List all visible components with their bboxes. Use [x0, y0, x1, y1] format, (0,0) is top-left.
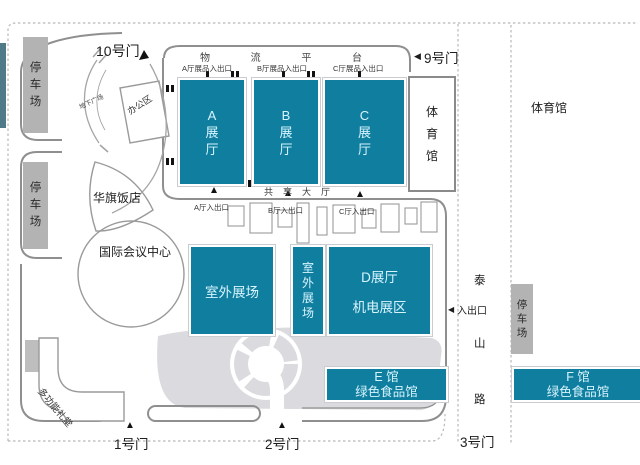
gate-3-label: 3号门 [460, 431, 495, 451]
conference-center-label: 国际会议中心 [99, 243, 171, 260]
venue-map: A展厅 B展厅 C展厅 室外展场 室外展场 D展厅 机电展区 E 馆 绿色食品馆… [0, 0, 640, 465]
hall-e: E 馆 绿色食品馆 [325, 367, 448, 402]
hall-entry-c-label: C厅入出口 [339, 206, 374, 217]
small-buildings-row [228, 202, 437, 243]
hall-a-label: A展厅 [205, 107, 219, 158]
conference-circle [78, 221, 184, 327]
gate-2-label: 2号门 [265, 433, 300, 453]
logistics-platform-label: 物 流 平 台 [200, 49, 362, 64]
freight-entrance-b-label: B厅展品入出口 [257, 63, 307, 74]
gate-9-label: 9号门 [424, 47, 459, 67]
gate-1-label: 1号门 [114, 433, 149, 453]
hall-b-label: B展厅 [279, 107, 293, 158]
gate10-triangle [139, 50, 149, 60]
hall-e-line1: E 馆 [374, 370, 398, 385]
hall-d-line2: 机电展区 [353, 296, 407, 316]
shared-hall-label: 共享大厅 [264, 185, 340, 198]
hall-entry-a-label: A厅入出口 [194, 202, 229, 213]
platform-char: 台 [352, 49, 362, 64]
gate-2-triangle-icon: ▲ [277, 420, 287, 431]
outdoor-exhibition-small-label: 室外展场 [302, 261, 315, 321]
road-char-tai: 泰 [474, 272, 486, 288]
freight-entrance-c-label: C厅展品入出口 [333, 63, 383, 74]
outdoor-exhibition-big-label: 室外展场 [205, 281, 259, 301]
parking-right-label: 停车场 [516, 298, 527, 340]
hall-entry-b-label: B厅入出口 [268, 205, 303, 216]
parking-lot-left-top: 停车场 [23, 37, 48, 133]
hall-f: F 馆 绿色食品馆 [512, 367, 640, 402]
gymnasium-outer-label: 体育馆 [531, 97, 544, 119]
parking-left-top-label: 停车场 [29, 60, 41, 111]
gymnasium-inner: 体育馆 [408, 76, 456, 192]
road-char-shan: 山 [474, 335, 486, 351]
hall-f-line1: F 馆 [566, 370, 590, 385]
road-char-lu: 路 [474, 391, 486, 407]
gymnasium-inner-label: 体育馆 [426, 101, 439, 167]
parking-left-bottom-label: 停车场 [29, 180, 41, 231]
gate-9-arrow-icon: ◀ [414, 51, 421, 62]
hall-c-label: C展厅 [358, 107, 372, 158]
road-entrance-label: 入出口 [457, 302, 487, 317]
platform-char: 物 [200, 49, 210, 64]
freight-entrance-a-label: A厅展品入出口 [182, 63, 232, 74]
parking-lot-left-bottom: 停车场 [23, 162, 48, 249]
hall-e-line2: 绿色食品馆 [355, 385, 418, 400]
hall-a: A展厅 [178, 78, 246, 186]
outdoor-exhibition-small: 室外展场 [291, 245, 325, 336]
outdoor-exhibition-big: 室外展场 [189, 245, 275, 336]
hall-f-line2: 绿色食品馆 [547, 385, 610, 400]
hall-c: C展厅 [323, 78, 406, 186]
left-edge-strip [0, 43, 6, 128]
hall-b: B展厅 [252, 78, 320, 186]
hall-d: D展厅 机电展区 [327, 245, 432, 336]
platform-char: 流 [251, 49, 261, 64]
hall-d-line1: D展厅 [361, 266, 398, 286]
gate-1-triangle-icon: ▲ [125, 420, 135, 431]
platform-char: 平 [301, 49, 311, 64]
hotel-label: 华旗饭店 [93, 189, 141, 206]
parking-lot-right: 停车场 [511, 284, 533, 354]
gate-10-label: 10号门 [96, 41, 140, 61]
road-entrance-arrow-icon: ◀ [448, 305, 454, 314]
